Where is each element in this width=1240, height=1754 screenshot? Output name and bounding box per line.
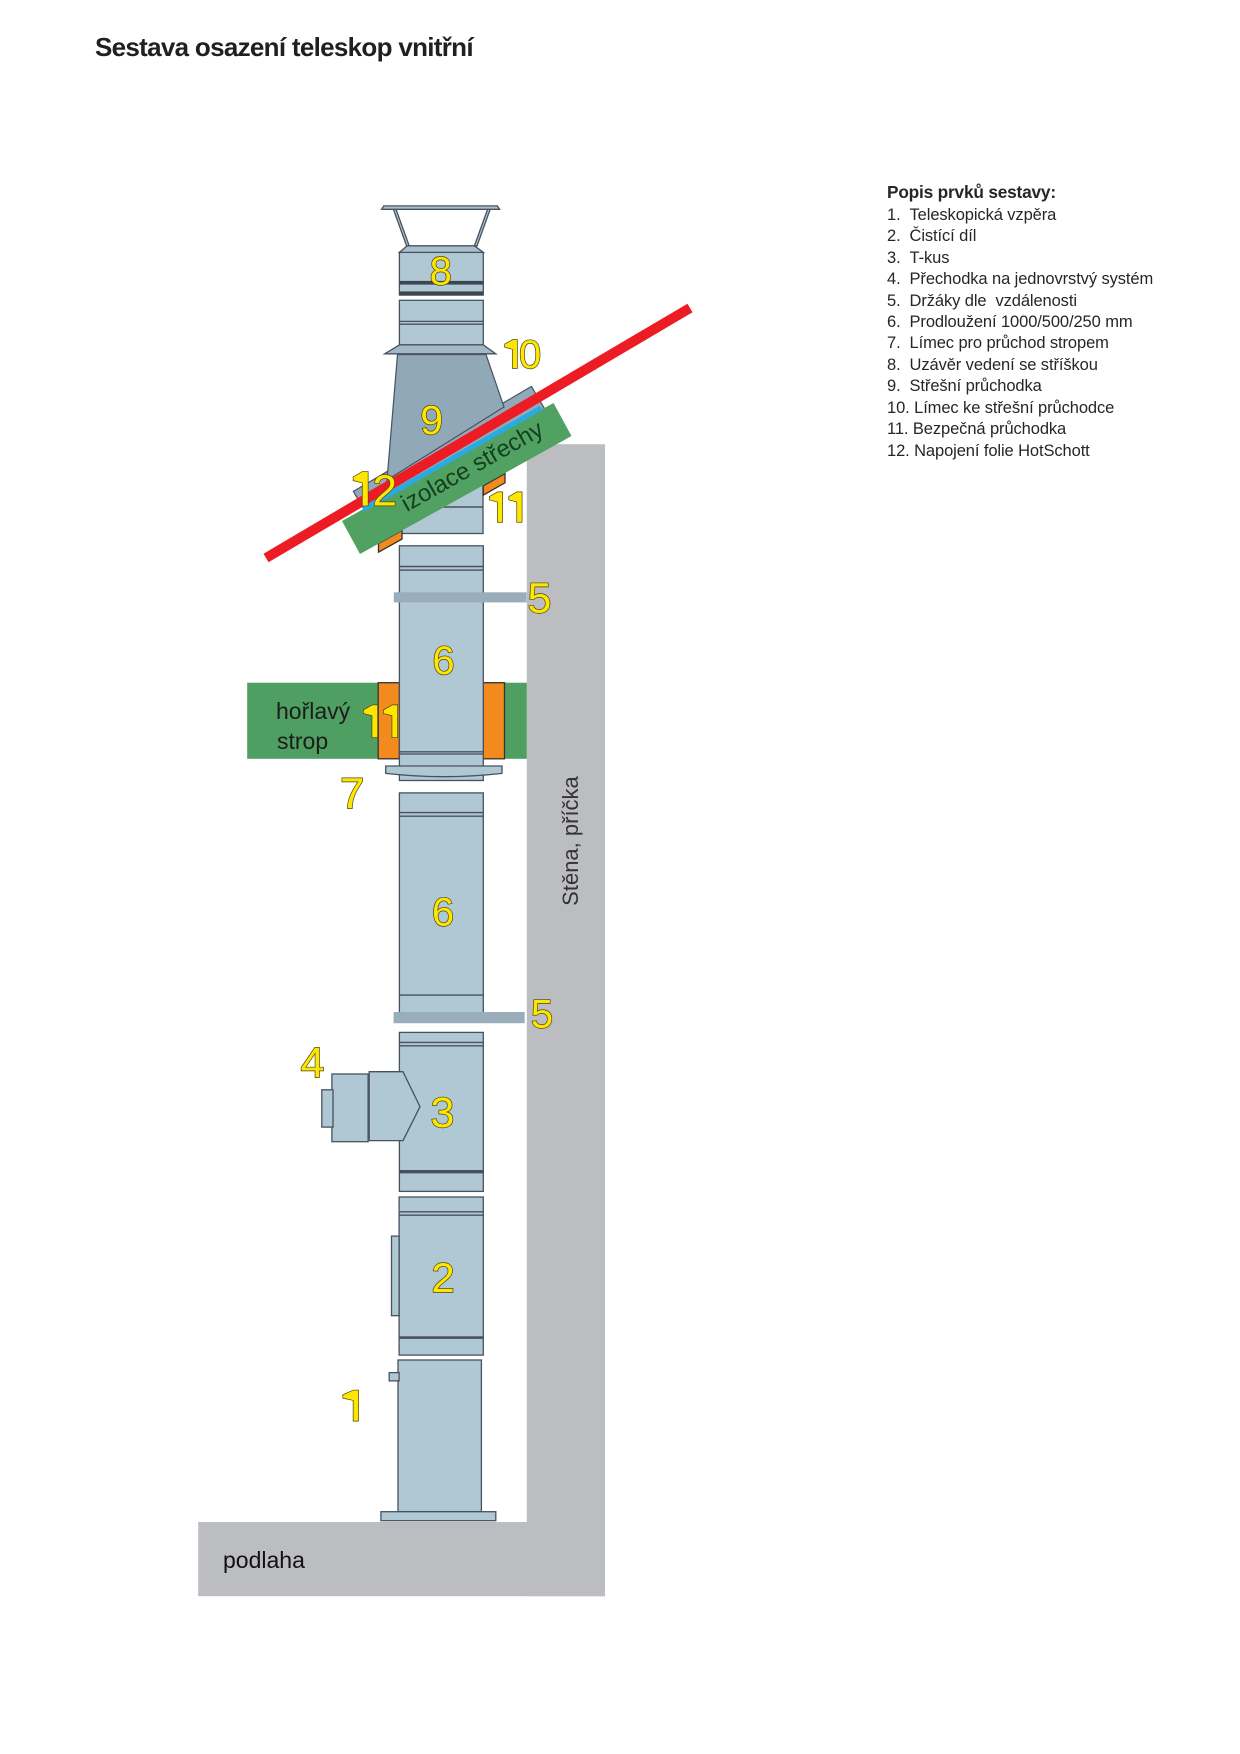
svg-text:7. Límec pro průchod stropem: 7. Límec pro průchod stropem <box>887 334 1109 352</box>
svg-text:10. Límec ke střešní průchodce: 10. Límec ke střešní průchodce <box>887 399 1114 417</box>
svg-text:9. Střešní průchodka: 9. Střešní průchodka <box>887 377 1043 395</box>
svg-text:2. Čistící díl: 2. Čistící díl <box>887 226 976 245</box>
svg-text:3: 3 <box>430 1089 454 1137</box>
svg-text:6: 6 <box>432 639 454 683</box>
svg-text:8: 8 <box>430 250 452 294</box>
svg-text:0: 0 <box>519 333 541 377</box>
svg-text:Popis prvků sestavy:: Popis prvků sestavy: <box>887 182 1056 202</box>
svg-text:9: 9 <box>420 397 443 443</box>
svg-text:12. Napojení folie HotSchott: 12. Napojení folie HotSchott <box>887 442 1090 460</box>
svg-text:strop: strop <box>277 728 328 754</box>
svg-text:4: 4 <box>301 1039 325 1087</box>
svg-text:8. Uzávěr vedení se stříškou: 8. Uzávěr vedení se stříškou <box>887 356 1098 374</box>
svg-text:3. T-kus: 3. T-kus <box>887 249 949 267</box>
svg-text:Stěna, příčka: Stěna, příčka <box>558 775 583 905</box>
svg-text:6. Prodloužení 1000/500/250 m: 6. Prodloužení 1000/500/250 mm <box>887 313 1132 331</box>
svg-text:11. Bezpečná průchodka: 11. Bezpečná průchodka <box>887 420 1067 438</box>
svg-text:hořlavý: hořlavý <box>276 698 351 724</box>
svg-text:1. Teleskopická vzpěra: 1. Teleskopická vzpěra <box>887 206 1057 224</box>
svg-text:5: 5 <box>527 575 551 623</box>
svg-text:2: 2 <box>373 467 397 516</box>
svg-text:Sestava osazení teleskop vnitř: Sestava osazení teleskop vnitřní <box>95 32 474 62</box>
svg-text:7: 7 <box>340 769 364 818</box>
svg-text:5: 5 <box>531 992 553 1036</box>
svg-text:5. Držáky dle vzdálenosti: 5. Držáky dle vzdálenosti <box>887 292 1077 310</box>
svg-text:4. Přechodka na jednovrstvý s: 4. Přechodka na jednovrstvý systém <box>887 270 1153 288</box>
svg-text:6: 6 <box>432 891 454 935</box>
svg-text:2: 2 <box>431 1254 454 1301</box>
svg-text:podlaha: podlaha <box>223 1547 305 1573</box>
